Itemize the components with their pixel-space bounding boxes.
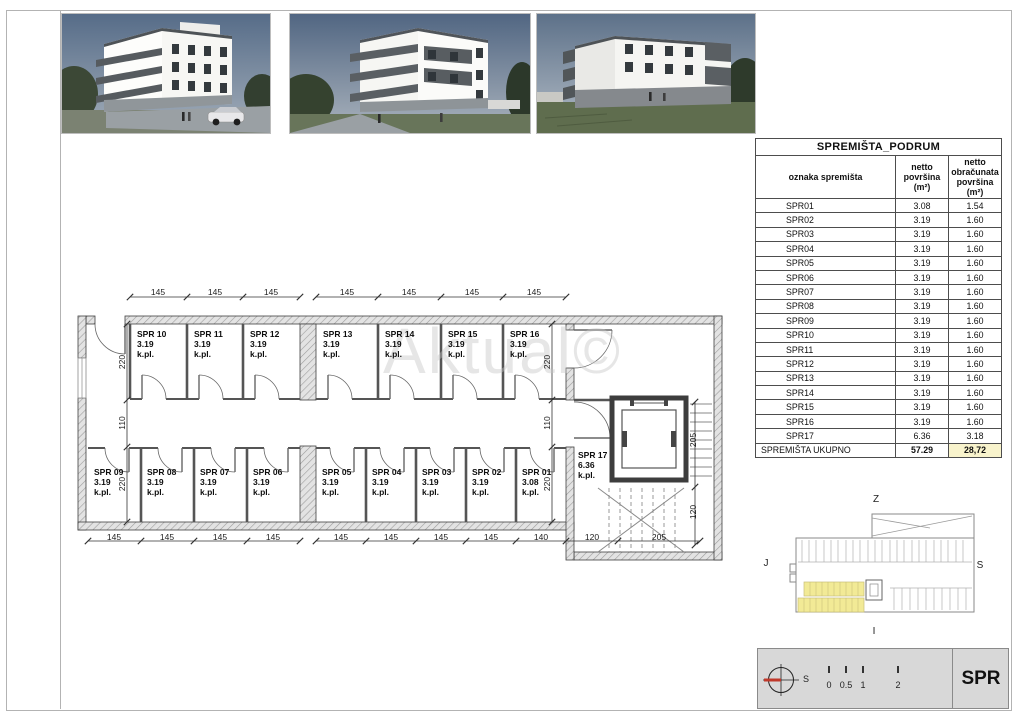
sheet-frame-inner-line xyxy=(60,10,61,709)
keyplan-label-top: Z xyxy=(868,494,884,505)
keyplan-label-right: S xyxy=(972,560,988,571)
table-cell: 1.60 xyxy=(949,400,1002,414)
scale-tick xyxy=(828,666,830,673)
table-cell: 3.19 xyxy=(896,285,949,299)
table-cell: 1.60 xyxy=(949,357,1002,371)
table-cell: 1.60 xyxy=(949,270,1002,284)
table-row: SPR133.191.60 xyxy=(756,371,1002,385)
table-cell: 6.36 xyxy=(896,429,949,443)
table-row: SPR103.191.60 xyxy=(756,328,1002,342)
table-cell: 1.60 xyxy=(949,342,1002,356)
table-cell: 3.19 xyxy=(896,256,949,270)
compass-label: S xyxy=(803,674,809,684)
table-cell: 1.60 xyxy=(949,299,1002,313)
table-row: SPR093.191.60 xyxy=(756,314,1002,328)
table-cell: SPR10 xyxy=(756,328,896,342)
table-total-row: SPREMIŠTA UKUPNO 57.29 28,72 xyxy=(756,443,1002,457)
table-cell: 1.60 xyxy=(949,285,1002,299)
table-cell: 1.60 xyxy=(949,256,1002,270)
table-row: SPR063.191.60 xyxy=(756,270,1002,284)
table-cell: SPR15 xyxy=(756,400,896,414)
table-row: SPR153.191.60 xyxy=(756,400,1002,414)
col-header-netto: netto površina (m²) xyxy=(896,156,949,199)
table-row: SPR033.191.60 xyxy=(756,227,1002,241)
table-cell: SPR08 xyxy=(756,299,896,313)
table-cell: SPR11 xyxy=(756,342,896,356)
scale-label: 2 xyxy=(888,680,908,690)
table-header-row: oznaka spremišta netto površina (m²) net… xyxy=(756,156,1002,199)
table-cell: 1.60 xyxy=(949,213,1002,227)
compass-icon xyxy=(762,662,800,698)
table-cell: 3.19 xyxy=(896,314,949,328)
table-cell: SPR16 xyxy=(756,414,896,428)
keyplan-label-bottom: I xyxy=(866,626,882,637)
table-cell: SPR02 xyxy=(756,213,896,227)
keyplan-label-left: J xyxy=(758,558,774,569)
table-cell: 3.08 xyxy=(896,199,949,213)
table-cell: SPR13 xyxy=(756,371,896,385)
table-cell: 3.19 xyxy=(896,342,949,356)
table-cell: SPR04 xyxy=(756,242,896,256)
table-cell: 3.19 xyxy=(896,213,949,227)
table-cell: 3.19 xyxy=(896,357,949,371)
table-row: SPR163.191.60 xyxy=(756,414,1002,428)
table-cell: 1.60 xyxy=(949,328,1002,342)
table-row: SPR113.191.60 xyxy=(756,342,1002,356)
table-row: SPR013.081.54 xyxy=(756,199,1002,213)
table-cell: SPR03 xyxy=(756,227,896,241)
table-cell: 3.19 xyxy=(896,299,949,313)
table-cell: 3.19 xyxy=(896,371,949,385)
storage-table-body: SPR013.081.54SPR023.191.60SPR033.191.60S… xyxy=(756,199,1002,444)
table-row: SPR143.191.60 xyxy=(756,386,1002,400)
table-row: SPR123.191.60 xyxy=(756,357,1002,371)
table-cell: 1.54 xyxy=(949,199,1002,213)
table-title: SPREMIŠTA_PODRUM xyxy=(756,139,1002,156)
table-cell: SPR12 xyxy=(756,357,896,371)
table-cell: SPR17 xyxy=(756,429,896,443)
total-obracunata: 28,72 xyxy=(949,443,1002,457)
building-render-3 xyxy=(537,14,755,133)
table-cell: SPR06 xyxy=(756,270,896,284)
table-row: SPR043.191.60 xyxy=(756,242,1002,256)
table-cell: 1.60 xyxy=(949,314,1002,328)
table-row: SPR083.191.60 xyxy=(756,299,1002,313)
table-cell: 1.60 xyxy=(949,227,1002,241)
building-render-1 xyxy=(62,14,270,133)
sheet-code: SPR xyxy=(952,649,1009,708)
table-cell: 3.18 xyxy=(949,429,1002,443)
table-cell: 3.19 xyxy=(896,400,949,414)
table-cell: 3.19 xyxy=(896,414,949,428)
table-cell: SPR14 xyxy=(756,386,896,400)
table-cell: 1.60 xyxy=(949,414,1002,428)
table-cell: 1.60 xyxy=(949,371,1002,385)
scale-tick xyxy=(845,666,847,673)
watermark: Aktual© xyxy=(383,314,622,388)
table-cell: 1.60 xyxy=(949,386,1002,400)
scale-label: 1 xyxy=(853,680,873,690)
table-cell: 3.19 xyxy=(896,328,949,342)
table-cell: 3.19 xyxy=(896,386,949,400)
storage-table: SPREMIŠTA_PODRUM oznaka spremišta netto … xyxy=(755,138,1001,458)
table-cell: SPR07 xyxy=(756,285,896,299)
table-cell: 1.60 xyxy=(949,242,1002,256)
total-label: SPREMIŠTA UKUPNO xyxy=(756,443,896,457)
table-cell: 3.19 xyxy=(896,270,949,284)
table-row: SPR073.191.60 xyxy=(756,285,1002,299)
table-row: SPR053.191.60 xyxy=(756,256,1002,270)
table-cell: SPR09 xyxy=(756,314,896,328)
table-cell: 3.19 xyxy=(896,242,949,256)
col-header-oznaka: oznaka spremišta xyxy=(756,156,896,199)
building-render-2 xyxy=(290,14,530,133)
scale-tick xyxy=(862,666,864,673)
table-cell: 3.19 xyxy=(896,227,949,241)
table-row: SPR023.191.60 xyxy=(756,213,1002,227)
scale-tick xyxy=(897,666,899,673)
table-row: SPR176.363.18 xyxy=(756,429,1002,443)
total-netto: 57.29 xyxy=(896,443,949,457)
drawing-sheet: Aktual© SPR 10 3.19 k.pl.SPR 11 3.19 k.p… xyxy=(0,0,1024,724)
table-cell: SPR05 xyxy=(756,256,896,270)
col-header-obracunata: netto obračunata površina (m²) xyxy=(949,156,1002,199)
table-cell: SPR01 xyxy=(756,199,896,213)
keyplan-highlight-area xyxy=(798,582,864,612)
